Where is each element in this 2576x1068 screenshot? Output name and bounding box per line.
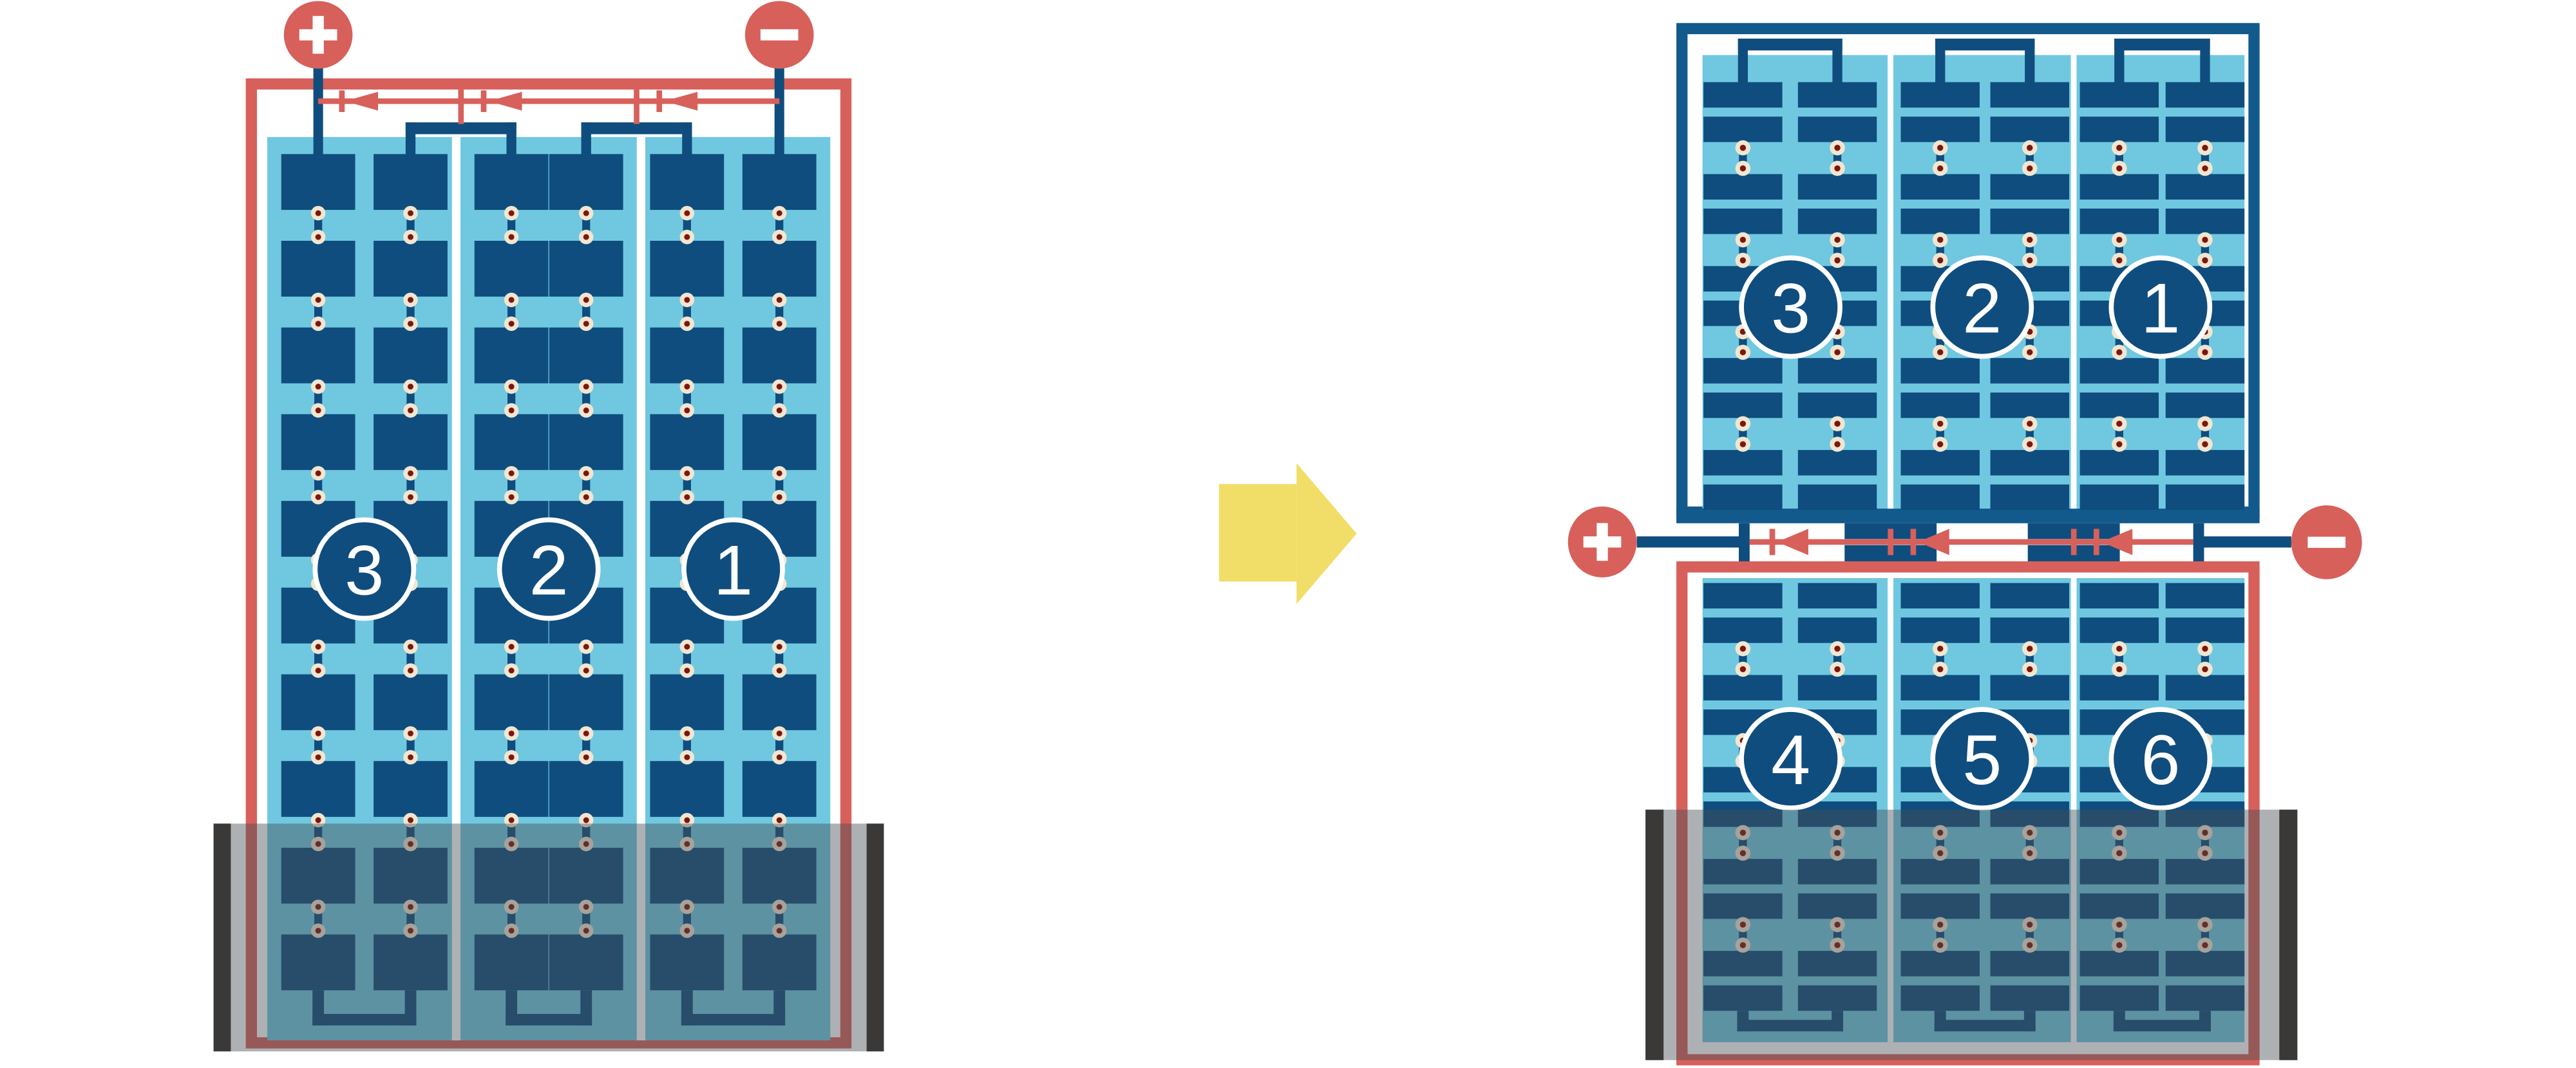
solder-joint-core bbox=[684, 731, 690, 736]
solder-joint-core bbox=[316, 754, 321, 760]
solder-joint-core bbox=[509, 234, 515, 240]
solar-cell bbox=[1703, 209, 1782, 234]
solder-joint-core bbox=[1740, 421, 1746, 427]
solder-joint-core bbox=[583, 731, 589, 736]
solder-joint-core bbox=[316, 644, 321, 650]
solder-joint-core bbox=[2116, 258, 2122, 263]
diode-tap bbox=[458, 89, 464, 124]
arrow-body bbox=[1219, 484, 1296, 582]
right-module: 321456 bbox=[1568, 28, 2362, 1060]
solar-cell bbox=[2080, 117, 2159, 142]
solder-joint-core bbox=[316, 494, 321, 500]
solar-cell bbox=[1798, 117, 1877, 142]
solder-joint-core bbox=[2202, 258, 2208, 263]
bridge-leg bbox=[582, 122, 591, 159]
solder-joint-core bbox=[2027, 258, 2032, 263]
solder-joint-core bbox=[408, 668, 413, 673]
solder-joint-core bbox=[2116, 441, 2122, 447]
solar-cell bbox=[1798, 82, 1877, 108]
solder-joint-core bbox=[684, 408, 690, 413]
minus-icon bbox=[761, 29, 799, 40]
solar-cell bbox=[1798, 209, 1877, 234]
diode-tick bbox=[481, 90, 487, 112]
substring-label: 6 bbox=[2141, 721, 2180, 800]
solar-cell bbox=[475, 674, 549, 730]
solar-cell bbox=[650, 154, 724, 210]
shade-bar-left bbox=[1645, 810, 1663, 1060]
solder-joint-core bbox=[509, 384, 515, 389]
solar-cell bbox=[1901, 209, 1980, 234]
solar-cell bbox=[2166, 82, 2244, 108]
minus-icon bbox=[2307, 537, 2345, 548]
solar-cell bbox=[281, 674, 355, 730]
solar-cell bbox=[2080, 393, 2159, 418]
solder-joint-core bbox=[583, 234, 589, 240]
solder-joint-core bbox=[1834, 421, 1840, 427]
solar-cell bbox=[2166, 583, 2244, 609]
solder-joint-core bbox=[777, 384, 782, 389]
solder-joint-core bbox=[684, 818, 690, 823]
busbar-bridge bbox=[2114, 39, 2210, 50]
solder-joint-core bbox=[2027, 421, 2032, 427]
solder-joint-core bbox=[316, 668, 321, 673]
solder-joint-core bbox=[583, 471, 589, 476]
solder-joint-core bbox=[316, 471, 321, 476]
solder-joint-core bbox=[777, 211, 782, 216]
solder-joint-core bbox=[1740, 145, 1746, 151]
substring-label: 2 bbox=[529, 532, 569, 610]
solar-cell bbox=[1991, 617, 2069, 643]
sign-bar bbox=[1596, 523, 1607, 561]
solar-cell bbox=[2166, 174, 2244, 200]
solder-joint-core bbox=[2027, 165, 2032, 171]
solder-joint-core bbox=[777, 668, 782, 673]
solder-joint-core bbox=[509, 211, 515, 216]
solar-cell bbox=[2080, 675, 2159, 701]
solder-joint-core bbox=[1937, 421, 1943, 427]
diode-tick bbox=[656, 90, 662, 112]
solar-cell bbox=[650, 761, 724, 817]
diode-tick bbox=[2094, 529, 2099, 555]
solar-cell bbox=[1991, 583, 2069, 609]
substring-label: 1 bbox=[2141, 270, 2180, 348]
solar-cell bbox=[1798, 485, 1877, 511]
solar-cell bbox=[1703, 174, 1782, 200]
solar-cell bbox=[2166, 675, 2244, 701]
solar-cell bbox=[2080, 174, 2159, 200]
solar-cell bbox=[1991, 209, 2069, 234]
solder-joint-core bbox=[408, 754, 413, 760]
solder-joint-core bbox=[316, 297, 321, 303]
left-module: 321 bbox=[214, 1, 884, 1052]
solder-joint-core bbox=[1834, 165, 1840, 171]
solar-cell bbox=[1901, 675, 1980, 701]
bridge-leg bbox=[682, 122, 692, 159]
solar-cell bbox=[1703, 675, 1782, 701]
bridge-leg bbox=[2025, 39, 2034, 87]
solar-cell bbox=[1703, 617, 1782, 643]
solar-cell bbox=[475, 154, 549, 210]
solar-cell bbox=[650, 241, 724, 297]
solder-joint-core bbox=[2202, 421, 2208, 427]
solar-cell bbox=[281, 328, 355, 384]
solar-cell bbox=[1703, 117, 1782, 142]
solar-cell bbox=[1798, 358, 1877, 384]
substring-label: 2 bbox=[1962, 270, 2002, 348]
solder-joint-core bbox=[2202, 666, 2208, 672]
solder-joint-core bbox=[408, 384, 413, 389]
solder-joint-core bbox=[2027, 646, 2032, 651]
solar-cell bbox=[475, 761, 549, 817]
shade-bar-right bbox=[2279, 810, 2297, 1060]
solar-cell bbox=[2166, 485, 2244, 511]
solar-cell bbox=[1991, 393, 2069, 418]
solder-joint-core bbox=[509, 754, 515, 760]
solder-joint-core bbox=[2116, 421, 2122, 427]
solder-joint-core bbox=[408, 818, 413, 823]
solder-joint-core bbox=[2202, 646, 2208, 651]
solder-joint-core bbox=[684, 234, 690, 240]
substring-label: 3 bbox=[1771, 270, 1810, 348]
solar-cell bbox=[549, 674, 623, 730]
solar-cell bbox=[1901, 450, 1980, 476]
solar-cell bbox=[549, 241, 623, 297]
bridge-leg bbox=[2114, 39, 2124, 87]
solder-joint-core bbox=[583, 668, 589, 673]
top-half-bottom-bar bbox=[1676, 509, 2260, 523]
transform-arrow-icon bbox=[1219, 463, 1357, 604]
solder-joint-core bbox=[1740, 165, 1746, 171]
solder-joint-core bbox=[1834, 350, 1840, 355]
solder-joint-core bbox=[509, 494, 515, 500]
solar-cell bbox=[1901, 174, 1980, 200]
bypass-diode-icon bbox=[664, 92, 697, 111]
diode-tick bbox=[339, 90, 345, 112]
solder-joint-core bbox=[408, 731, 413, 736]
solar-cell bbox=[374, 414, 448, 470]
solar-cell bbox=[1991, 117, 2069, 142]
solar-cell bbox=[281, 241, 355, 297]
solder-joint-core bbox=[2027, 237, 2032, 243]
solder-joint-core bbox=[583, 384, 589, 389]
solar-cell bbox=[2166, 358, 2244, 384]
solder-joint-core bbox=[2202, 145, 2208, 151]
solar-cell bbox=[1901, 617, 1980, 643]
diode-tick bbox=[1770, 529, 1776, 555]
solar-cell bbox=[1901, 485, 1980, 511]
solar-cell bbox=[650, 414, 724, 470]
solder-joint-core bbox=[1740, 666, 1746, 672]
solder-joint-core bbox=[583, 494, 589, 500]
solder-joint-core bbox=[408, 321, 413, 326]
solder-joint-core bbox=[1740, 237, 1746, 243]
solar-cell bbox=[1901, 583, 1980, 609]
solar-cell bbox=[1991, 82, 2069, 108]
busbar-bridge bbox=[1935, 39, 2034, 50]
solder-joint-core bbox=[2027, 666, 2032, 672]
negative-bus bbox=[2199, 536, 2291, 547]
solar-cell bbox=[1798, 450, 1877, 476]
solar-cell bbox=[374, 674, 448, 730]
solder-joint-core bbox=[583, 818, 589, 823]
solar-cell bbox=[1798, 583, 1877, 609]
solder-joint-core bbox=[2027, 441, 2032, 447]
sign-bar bbox=[761, 29, 799, 40]
solar-cell bbox=[1703, 485, 1782, 511]
solder-joint-core bbox=[1740, 350, 1746, 355]
solar-cell bbox=[475, 414, 549, 470]
solar-cell bbox=[2166, 209, 2244, 234]
solder-joint-core bbox=[684, 644, 690, 650]
solder-joint-core bbox=[316, 321, 321, 326]
solar-cell bbox=[2080, 583, 2159, 609]
solder-joint-core bbox=[777, 408, 782, 413]
diode-tap bbox=[1888, 529, 1893, 555]
solar-cell bbox=[2080, 209, 2159, 234]
busbar-bridge bbox=[582, 122, 692, 134]
solder-joint-core bbox=[1834, 145, 1840, 151]
solar-cell bbox=[1798, 174, 1877, 200]
substring-label: 4 bbox=[1771, 721, 1810, 800]
solder-joint-core bbox=[583, 211, 589, 216]
solder-joint-core bbox=[777, 297, 782, 303]
solar-cell bbox=[475, 328, 549, 384]
solar-cell bbox=[743, 154, 817, 210]
solder-joint-core bbox=[2202, 350, 2208, 355]
solder-joint-core bbox=[408, 297, 413, 303]
solar-cell bbox=[1798, 393, 1877, 418]
solder-joint-core bbox=[2202, 441, 2208, 447]
solder-joint-core bbox=[777, 818, 782, 823]
solder-joint-core bbox=[509, 408, 515, 413]
solar-cell bbox=[549, 154, 623, 210]
solar-cell bbox=[374, 328, 448, 384]
solder-joint-core bbox=[777, 494, 782, 500]
solder-joint-core bbox=[408, 644, 413, 650]
solar-cell bbox=[1901, 393, 1980, 418]
solar-cell bbox=[1991, 358, 2069, 384]
solder-joint-core bbox=[2116, 646, 2122, 651]
solder-joint-core bbox=[684, 754, 690, 760]
solar-cell bbox=[2080, 617, 2159, 643]
shade-overlay bbox=[214, 823, 884, 1051]
solar-cell bbox=[2080, 450, 2159, 476]
bypass-diode-icon bbox=[489, 92, 522, 111]
solder-joint-core bbox=[583, 321, 589, 326]
busbar-bridge bbox=[1738, 39, 1842, 50]
solder-joint-core bbox=[2116, 165, 2122, 171]
solder-joint-core bbox=[2027, 350, 2032, 355]
diode-tap bbox=[634, 89, 639, 124]
solar-cell bbox=[475, 241, 549, 297]
solar-cell bbox=[549, 414, 623, 470]
positive-bus bbox=[1637, 536, 1745, 547]
bypass-diode-icon bbox=[1777, 529, 1808, 555]
solder-joint-core bbox=[1937, 646, 1943, 651]
solar-cell bbox=[2166, 450, 2244, 476]
solder-joint-core bbox=[316, 384, 321, 389]
solar-cell bbox=[743, 241, 817, 297]
solder-joint-core bbox=[316, 818, 321, 823]
solder-joint-core bbox=[1937, 165, 1943, 171]
solar-cell bbox=[1703, 393, 1782, 418]
bridge-leg bbox=[506, 122, 516, 159]
solar-cell bbox=[549, 328, 623, 384]
bypass-diode-icon bbox=[345, 92, 378, 111]
solder-joint-core bbox=[684, 494, 690, 500]
solder-joint-core bbox=[316, 408, 321, 413]
solar-cell bbox=[2166, 617, 2244, 643]
solar-cell bbox=[2166, 117, 2244, 142]
solder-joint-core bbox=[1937, 350, 1943, 355]
solar-cell bbox=[743, 328, 817, 384]
solar-cell bbox=[743, 414, 817, 470]
solder-joint-core bbox=[408, 471, 413, 476]
solar-cell bbox=[1901, 117, 1980, 142]
solder-joint-core bbox=[777, 731, 782, 736]
solar-cell bbox=[2080, 358, 2159, 384]
solder-joint-core bbox=[1834, 441, 1840, 447]
solar-cell bbox=[1703, 450, 1782, 476]
solar-cell bbox=[2166, 393, 2244, 418]
solder-joint-core bbox=[583, 297, 589, 303]
sign-bar bbox=[2307, 537, 2345, 548]
solar-cell bbox=[743, 674, 817, 730]
diagram-canvas: 321 321456 bbox=[0, 0, 2576, 1068]
substring-label: 1 bbox=[714, 532, 753, 610]
solar-cell bbox=[2080, 485, 2159, 511]
solar-cell bbox=[1901, 358, 1980, 384]
solder-joint-core bbox=[684, 384, 690, 389]
solder-joint-core bbox=[1834, 646, 1840, 651]
bridge-leg bbox=[1738, 39, 1748, 87]
solder-joint-core bbox=[2027, 145, 2032, 151]
solar-cell bbox=[1798, 675, 1877, 701]
bridge-leg bbox=[1935, 39, 1945, 87]
solar-cell bbox=[374, 154, 448, 210]
solder-joint-core bbox=[1937, 258, 1943, 263]
solder-joint-core bbox=[684, 471, 690, 476]
diode-tap bbox=[2071, 529, 2077, 555]
solar-module-wiring-diagram: 321 321456 bbox=[0, 0, 2576, 1068]
solar-cell bbox=[1703, 82, 1782, 108]
solder-joint-core bbox=[316, 731, 321, 736]
solder-joint-core bbox=[316, 211, 321, 216]
solar-cell bbox=[1991, 174, 2069, 200]
solder-joint-core bbox=[1937, 237, 1943, 243]
diode-bus-line bbox=[318, 98, 779, 104]
solder-joint-core bbox=[509, 668, 515, 673]
solar-cell bbox=[1703, 358, 1782, 384]
solder-joint-core bbox=[509, 731, 515, 736]
solder-joint-core bbox=[2116, 350, 2122, 355]
shade-bar-right bbox=[867, 823, 884, 1051]
solder-joint-core bbox=[777, 321, 782, 326]
solder-joint-core bbox=[2116, 145, 2122, 151]
solar-cell bbox=[743, 761, 817, 817]
solder-joint-core bbox=[583, 644, 589, 650]
solder-joint-core bbox=[684, 321, 690, 326]
solder-joint-core bbox=[509, 644, 515, 650]
bridge-leg bbox=[1832, 39, 1842, 87]
solar-cell bbox=[1703, 583, 1782, 609]
column-gap bbox=[2071, 55, 2077, 509]
solder-joint-core bbox=[1834, 258, 1840, 263]
solar-cell bbox=[281, 414, 355, 470]
solar-cell bbox=[650, 674, 724, 730]
substring-label: 5 bbox=[1962, 721, 2002, 800]
diode-tick bbox=[1911, 529, 1917, 555]
solder-joint-core bbox=[1740, 258, 1746, 263]
solder-joint-core bbox=[777, 644, 782, 650]
solar-cell bbox=[1991, 450, 2069, 476]
solder-joint-core bbox=[583, 408, 589, 413]
solder-joint-core bbox=[1740, 646, 1746, 651]
solder-joint-core bbox=[408, 211, 413, 216]
solar-cell bbox=[1991, 485, 2069, 511]
shade-overlay bbox=[1645, 810, 2297, 1060]
solder-joint-core bbox=[1937, 666, 1943, 672]
solder-joint-core bbox=[2202, 237, 2208, 243]
solder-joint-core bbox=[1740, 441, 1746, 447]
solder-joint-core bbox=[684, 668, 690, 673]
solder-joint-core bbox=[2116, 237, 2122, 243]
solar-cell bbox=[549, 761, 623, 817]
solder-joint-core bbox=[1834, 666, 1840, 672]
solder-joint-core bbox=[777, 234, 782, 240]
solder-joint-core bbox=[408, 494, 413, 500]
solder-joint-core bbox=[1834, 237, 1840, 243]
solar-cell bbox=[1901, 82, 1980, 108]
solder-joint-core bbox=[777, 471, 782, 476]
solder-joint-core bbox=[2116, 666, 2122, 672]
arrow-head bbox=[1296, 463, 1356, 604]
solar-cell bbox=[2080, 82, 2159, 108]
solar-cell bbox=[1798, 617, 1877, 643]
solar-cell bbox=[281, 761, 355, 817]
solder-joint-core bbox=[509, 818, 515, 823]
shade-bar-left bbox=[214, 823, 231, 1051]
solder-joint-core bbox=[509, 321, 515, 326]
solder-joint-core bbox=[316, 234, 321, 240]
solder-joint-core bbox=[1937, 145, 1943, 151]
solder-joint-core bbox=[2202, 165, 2208, 171]
solar-cell bbox=[374, 241, 448, 297]
solder-joint-core bbox=[1937, 441, 1943, 447]
solder-joint-core bbox=[684, 297, 690, 303]
bridge-leg bbox=[406, 122, 415, 159]
solder-joint-core bbox=[583, 754, 589, 760]
bridge-leg bbox=[2200, 39, 2210, 87]
solder-joint-core bbox=[777, 754, 782, 760]
solder-joint-core bbox=[408, 408, 413, 413]
column-gap bbox=[1888, 55, 1893, 509]
solder-joint-core bbox=[684, 211, 690, 216]
solar-cell bbox=[650, 328, 724, 384]
substring-label: 3 bbox=[345, 532, 384, 610]
solar-cell bbox=[374, 761, 448, 817]
solder-joint-core bbox=[509, 297, 515, 303]
busbar-bridge bbox=[406, 122, 516, 134]
solar-cell bbox=[1991, 675, 2069, 701]
sign-bar bbox=[312, 16, 323, 54]
solder-joint-core bbox=[408, 234, 413, 240]
solar-cell bbox=[281, 154, 355, 210]
solder-joint-core bbox=[509, 471, 515, 476]
